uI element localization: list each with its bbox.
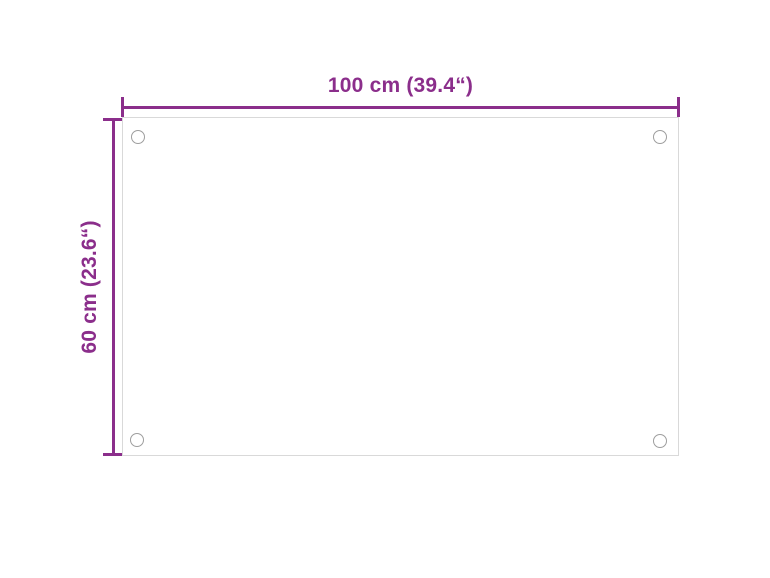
height-dimension-line xyxy=(112,119,115,455)
mounting-hole-bottom-right xyxy=(653,434,667,448)
mounting-hole-top-left xyxy=(131,130,145,144)
glass-panel xyxy=(122,117,679,456)
width-dimension-right-tick xyxy=(677,97,680,117)
height-dimension-top-tick xyxy=(103,118,123,121)
mounting-hole-bottom-left xyxy=(130,433,144,447)
width-dimension-label: 100 cm (39.4“) xyxy=(122,74,679,98)
width-dimension-left-tick xyxy=(121,97,124,117)
height-dimension-label: 60 cm (23.6“) xyxy=(75,187,105,387)
width-dimension-line xyxy=(122,106,679,109)
height-dimension-bottom-tick xyxy=(103,453,123,456)
dimension-diagram: 100 cm (39.4“) 60 cm (23.6“) xyxy=(0,0,770,578)
mounting-hole-top-right xyxy=(653,130,667,144)
